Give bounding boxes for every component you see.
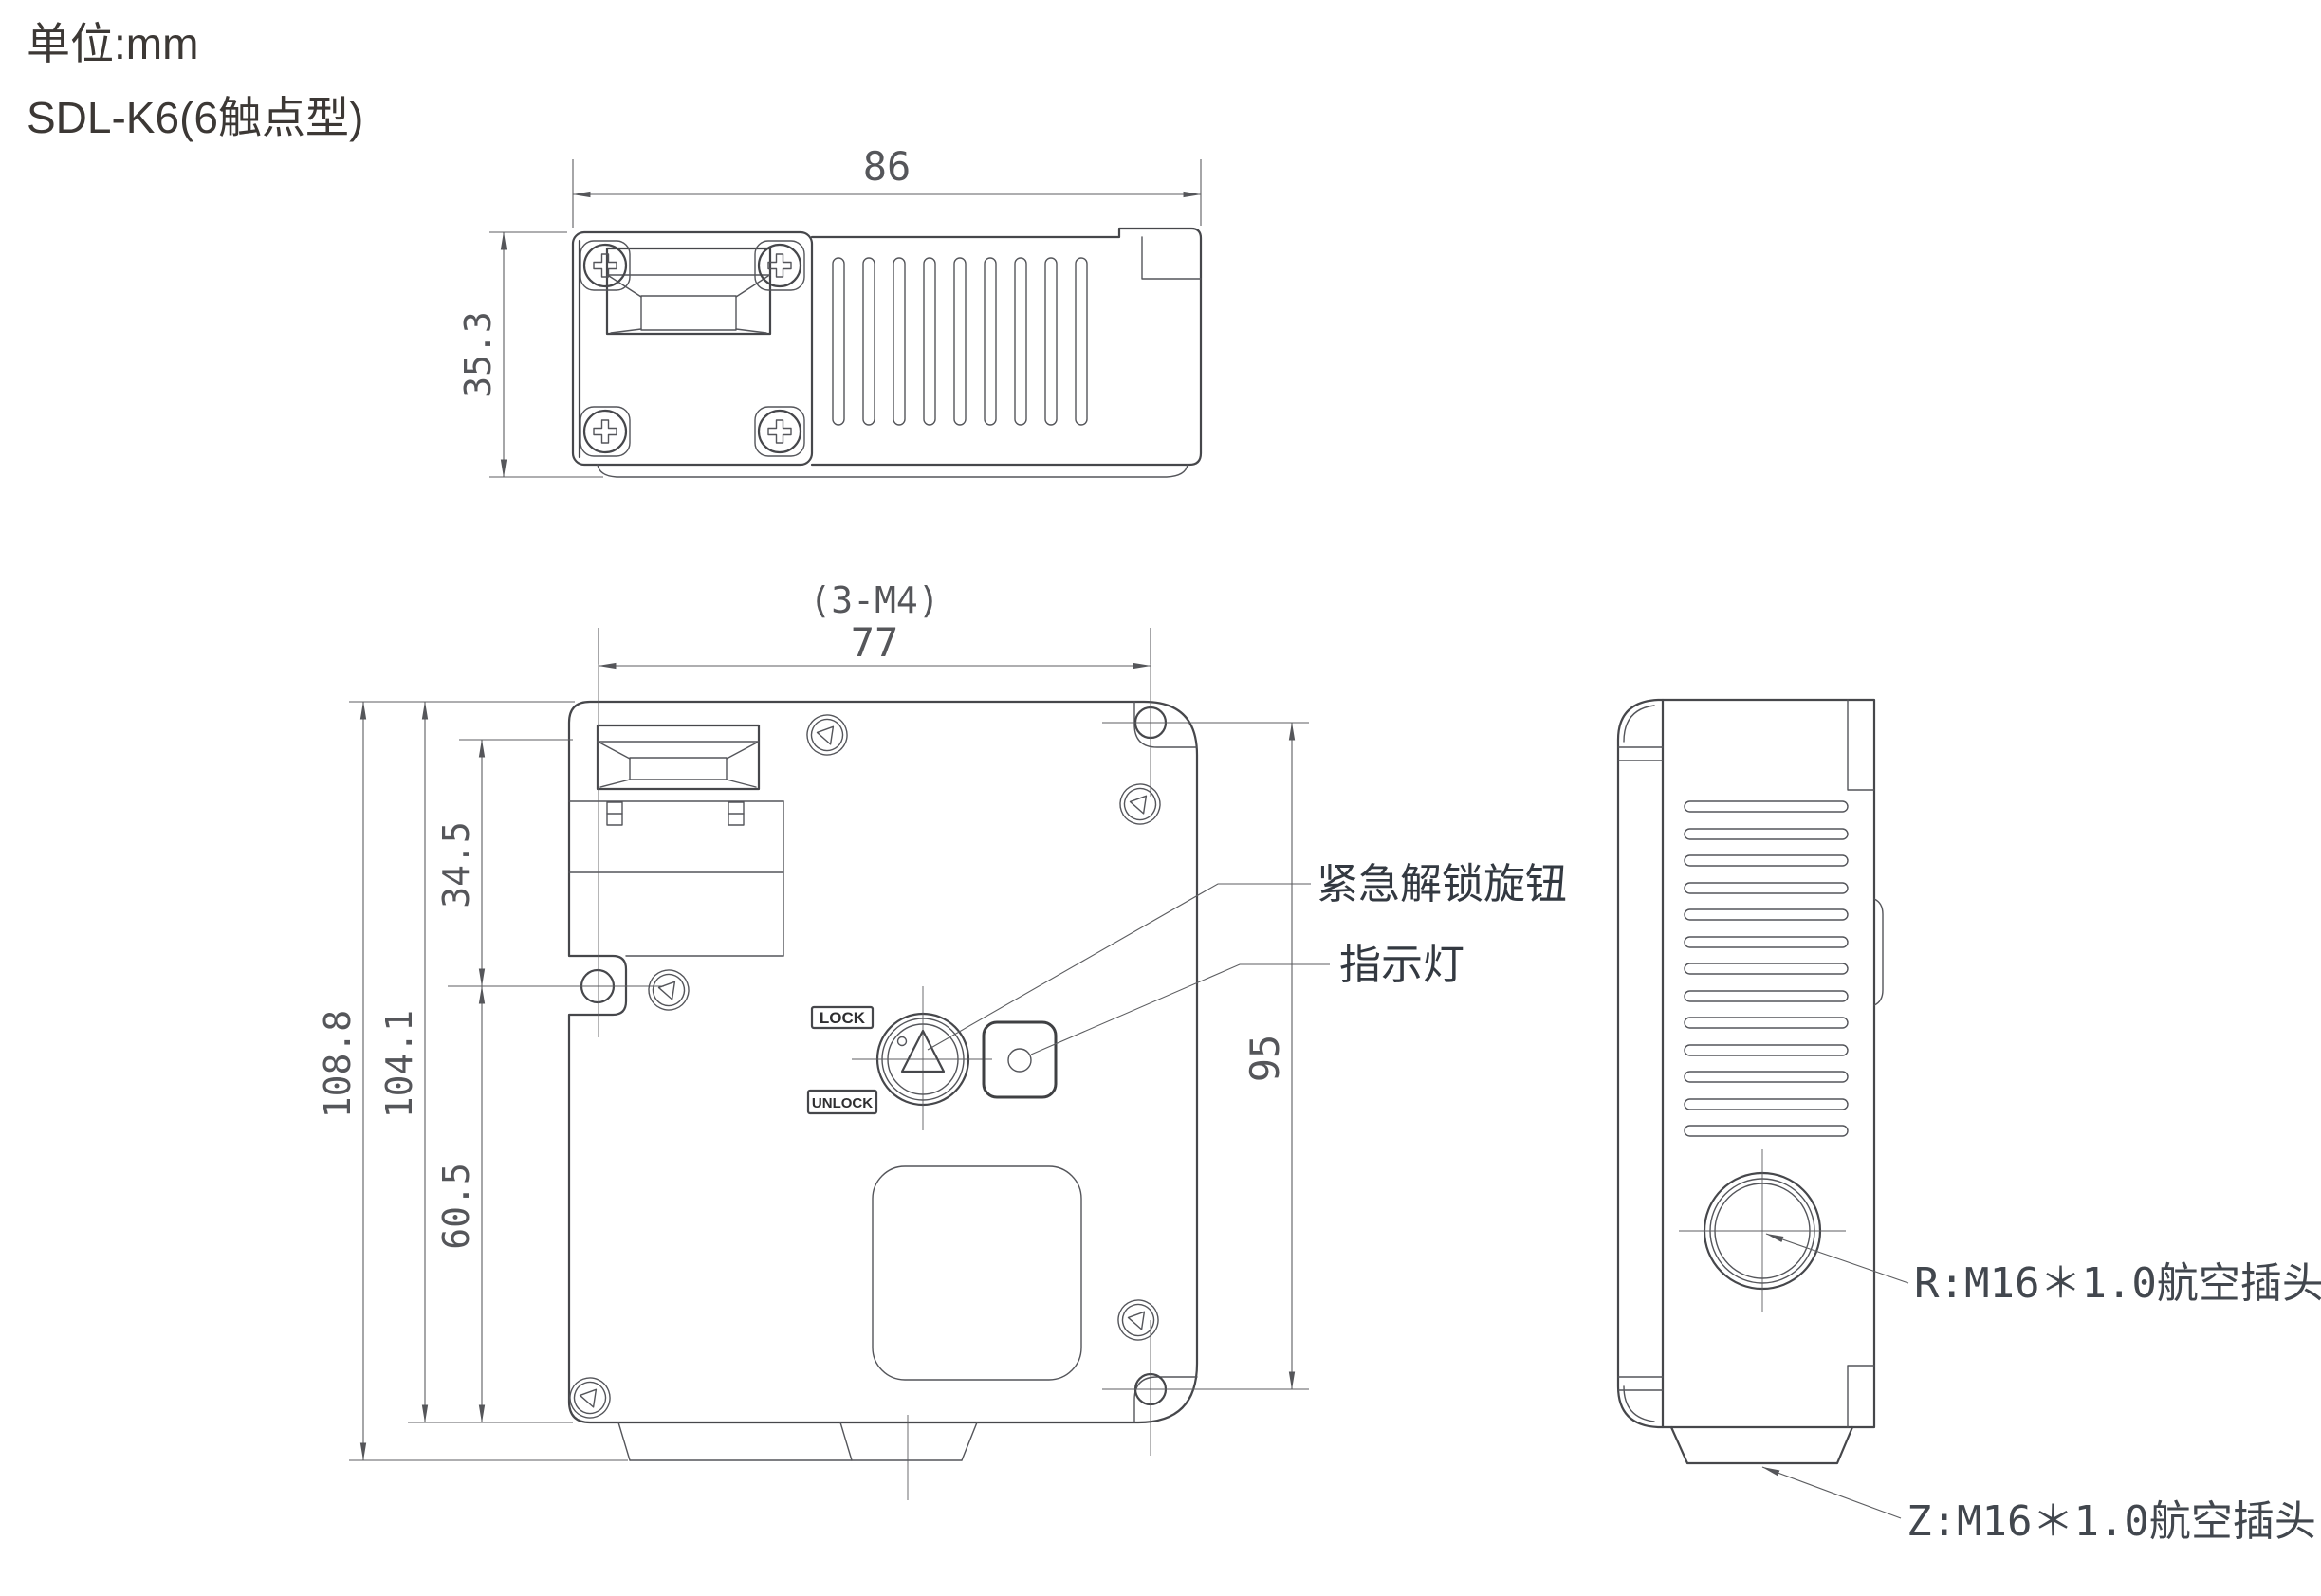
dim-right-hole-span: 95 <box>1242 723 1292 1389</box>
side-view-clip-bump <box>1874 899 1883 1005</box>
unlock-label: UNLOCK <box>812 1095 873 1111</box>
top-view-keeper-block <box>573 232 812 465</box>
indicator-led-icon <box>1008 1049 1031 1072</box>
screw-symbol-icon <box>1114 779 1166 830</box>
mounting-hole-left <box>448 633 664 1037</box>
dim-right-hole-span-value: 95 <box>1242 1035 1288 1083</box>
dim-hole-pattern-value: (3-M4) <box>809 579 939 621</box>
z-connector-foot <box>1671 1427 1852 1463</box>
side-view-vent-slots <box>1685 801 1848 1136</box>
top-view: 86 35.3 <box>457 143 1201 477</box>
top-view-keeper-plate <box>607 248 770 334</box>
knob-dot-icon <box>898 1037 907 1046</box>
top-view-corner-notch <box>1142 237 1201 279</box>
front-view-keeper-plate <box>598 725 759 789</box>
top-view-bottom-lip <box>598 465 1188 477</box>
dimension-drawing-svg: 单位:mm SDL-K6(6触点型) <box>0 0 2321 1596</box>
dim-hole-span: (3-M4) 77 <box>599 579 1151 666</box>
indicator-light <box>984 1022 1056 1097</box>
r-connector-label: R:M16＊1.0航空插头 <box>1914 1259 2321 1308</box>
dim-total-height-value: 108.8 <box>317 1010 359 1118</box>
dim-body-height: 104.1 <box>349 702 575 1422</box>
dim-plate-to-hole-value: 34.5 <box>435 821 477 908</box>
side-view: R:M16＊1.0航空插头 Z:M16＊1.0航空插头 <box>1618 700 2321 1546</box>
side-view-face-plate <box>1618 700 1663 1427</box>
indicator-light-label: 指示灯 <box>1339 941 1464 989</box>
phillips-screw-icon <box>580 407 630 456</box>
front-view: LOCK UNLOCK (3-M4) 77 <box>317 579 1567 1500</box>
dim-hole-to-bottom: 60.5 <box>435 986 482 1422</box>
lock-label: LOCK <box>820 1009 866 1027</box>
unit-label: 单位:mm <box>27 19 198 68</box>
side-view-body-outline <box>1618 700 1874 1427</box>
r-connector-socket <box>1679 1149 1846 1312</box>
top-view-vent-slots <box>833 258 1087 425</box>
leader-emergency-knob <box>928 884 1311 1050</box>
screw-symbol-icon <box>801 709 853 761</box>
mounting-hole-bottom-right <box>1102 1320 1309 1456</box>
dim-hole-span-value: 77 <box>851 619 899 666</box>
emergency-knob-label: 紧急解锁旋钮 <box>1317 860 1567 908</box>
contact-window-icon <box>728 802 744 825</box>
front-view-contact-section <box>569 801 783 956</box>
drawing-canvas: 单位:mm SDL-K6(6触点型) <box>0 0 2321 1596</box>
dim-body-height-value: 104.1 <box>378 1010 420 1118</box>
screw-symbol-icon <box>643 964 694 1016</box>
dim-total-height: 108.8 <box>317 702 628 1460</box>
model-label: SDL-K6(6触点型) <box>27 93 363 142</box>
screw-symbol-icon <box>1113 1294 1164 1346</box>
z-connector-label: Z:M16＊1.0航空插头 <box>1907 1497 2316 1546</box>
mounting-hole-top-right <box>1102 633 1309 797</box>
contact-window-icon <box>607 802 622 825</box>
phillips-screw-icon <box>755 407 804 456</box>
dim-plate-to-hole: 34.5 <box>435 740 573 986</box>
side-view-bottom-notch <box>1848 1366 1874 1427</box>
leader-z-connector <box>1762 1467 1901 1518</box>
dim-top-height-value: 35.3 <box>457 311 499 398</box>
dim-hole-to-bottom-value: 60.5 <box>435 1163 477 1250</box>
leader-r-connector <box>1766 1234 1908 1283</box>
front-view-lower-opening <box>873 1166 1081 1380</box>
dim-top-height: 35.3 <box>457 232 603 477</box>
dim-top-width-value: 86 <box>863 143 912 190</box>
emergency-unlock-knob: LOCK UNLOCK <box>808 986 992 1130</box>
front-view-body-outline <box>569 702 1197 1422</box>
front-view-bottom-skirt <box>618 1415 977 1500</box>
dim-top-width: 86 <box>573 143 1201 228</box>
side-view-top-notch <box>1848 700 1874 790</box>
